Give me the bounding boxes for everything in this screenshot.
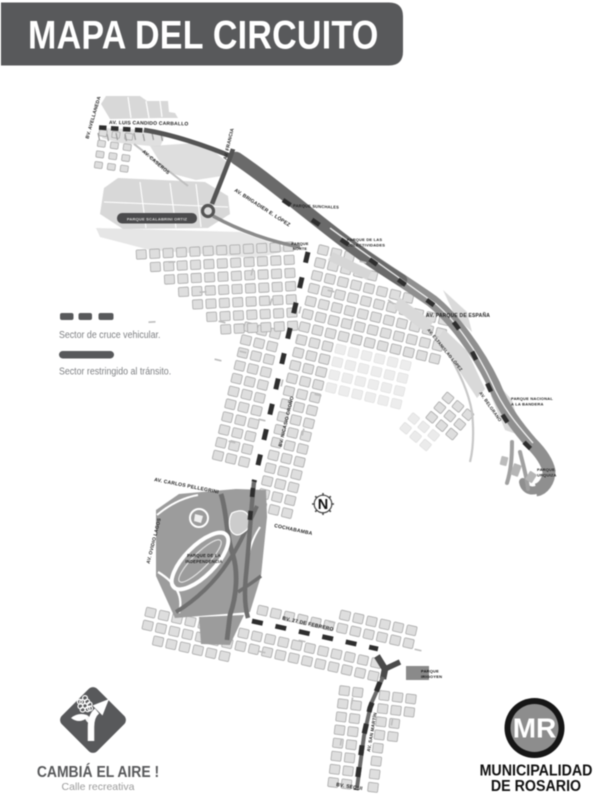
svg-text:NORTE: NORTE <box>293 247 308 251</box>
svg-text:MUNICIPALIDAD: MUNICIPALIDAD <box>480 763 593 780</box>
svg-text:PARQUE: PARQUE <box>421 669 439 674</box>
svg-text:Calle recreativa: Calle recreativa <box>62 781 135 793</box>
svg-text:PARQUE SCALABRINI ORTIZ: PARQUE SCALABRINI ORTIZ <box>127 217 188 222</box>
svg-text:MR: MR <box>513 713 557 744</box>
svg-text:INDEPENDENCIA: INDEPENDENCIA <box>185 559 222 564</box>
svg-text:IRIGOYEN: IRIGOYEN <box>421 674 442 679</box>
svg-text:DE ROSARIO: DE ROSARIO <box>491 779 581 796</box>
svg-text:COLECTIVIDADES: COLECTIVIDADES <box>347 243 385 248</box>
svg-text:Sector de cruce vehicular.: Sector de cruce vehicular. <box>59 329 160 341</box>
svg-text:PARQUE NACIONAL: PARQUE NACIONAL <box>511 396 553 401</box>
svg-text:MAPA DEL CIRCUITO: MAPA DEL CIRCUITO <box>28 12 379 57</box>
svg-text:A LA BANDERA: A LA BANDERA <box>511 402 544 407</box>
svg-text:PARQUE DE LA: PARQUE DE LA <box>187 553 221 558</box>
svg-text:Sector restringido al tránsito: Sector restringido al tránsito. <box>59 366 171 378</box>
svg-text:AV. PARQUE DE ESPAÑA: AV. PARQUE DE ESPAÑA <box>426 312 490 319</box>
svg-text:PARQUE: PARQUE <box>291 242 308 246</box>
svg-text:URQUIZA: URQUIZA <box>537 473 557 478</box>
svg-text:PARQUE DE LAS: PARQUE DE LAS <box>347 237 382 242</box>
svg-text:CAMBIÁ EL AIRE !: CAMBIÁ EL AIRE ! <box>37 763 159 781</box>
svg-text:PARQUE: PARQUE <box>537 467 555 472</box>
svg-text:N: N <box>318 497 328 513</box>
